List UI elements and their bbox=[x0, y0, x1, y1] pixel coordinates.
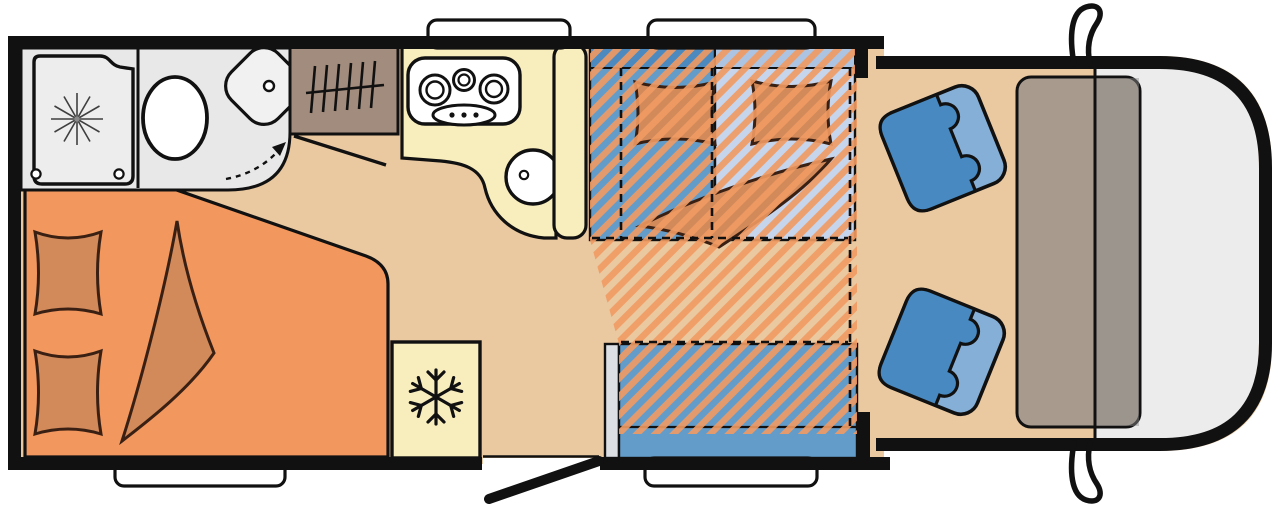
pillow bbox=[35, 232, 101, 314]
fridge bbox=[392, 342, 480, 458]
shower-tray bbox=[31, 56, 133, 184]
kitchen-tall-cabinet bbox=[554, 44, 586, 238]
sink bbox=[506, 150, 560, 204]
sink-drain-dot bbox=[520, 171, 528, 179]
bathroom bbox=[21, 39, 311, 190]
drain-dot bbox=[31, 169, 40, 178]
drain-dot bbox=[114, 169, 123, 178]
dashboard bbox=[1017, 63, 1140, 444]
hob bbox=[408, 58, 520, 125]
side-bench-armrest bbox=[605, 344, 619, 458]
mirror-bottom bbox=[1072, 443, 1101, 501]
faucet-dot bbox=[264, 81, 274, 91]
toilet bbox=[143, 77, 207, 159]
floorplan-canvas bbox=[0, 0, 1280, 507]
mirror-top bbox=[1072, 6, 1101, 64]
entry-door bbox=[483, 457, 599, 500]
pillow bbox=[35, 351, 101, 434]
floorplan bbox=[0, 0, 1280, 507]
dinette bbox=[590, 46, 857, 458]
dropdown-bed-overlay bbox=[590, 46, 857, 434]
